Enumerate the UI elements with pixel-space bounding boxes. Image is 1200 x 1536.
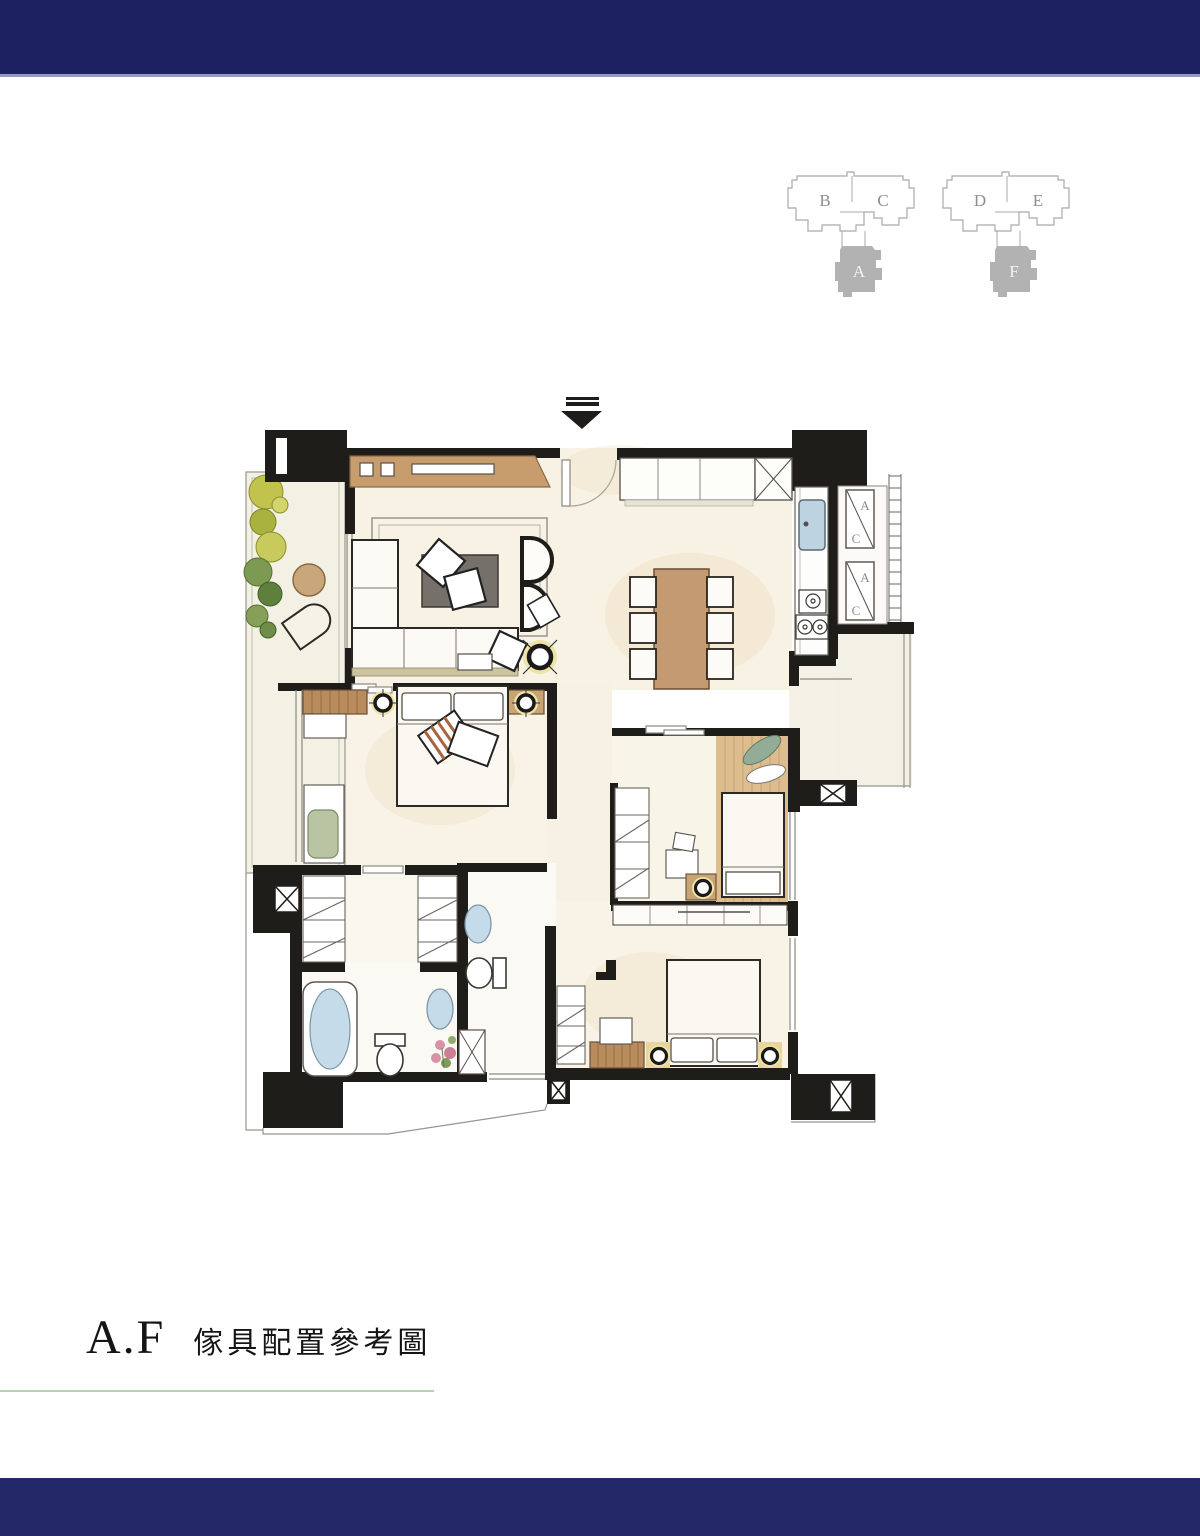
shower xyxy=(459,1030,485,1074)
soundbar xyxy=(412,464,494,474)
wardrobe xyxy=(557,986,585,1064)
toilet xyxy=(466,958,506,988)
plan-title-code: A.F xyxy=(86,1310,165,1365)
ceiling-light-icon xyxy=(759,1045,781,1067)
x-cabinet xyxy=(755,458,792,500)
keyplan-unit-label: D xyxy=(974,191,986,210)
shaft-x-icon xyxy=(820,784,846,803)
bathtub xyxy=(303,982,357,1076)
keyplan-unit-label: C xyxy=(877,191,888,210)
double-bed xyxy=(667,960,760,1066)
ac-box: A C xyxy=(846,562,874,620)
kitchen xyxy=(795,487,828,655)
shaft-x-icon xyxy=(275,886,299,912)
kitchen-sink xyxy=(799,500,825,550)
plan-title-label: 傢具配置參考圖 xyxy=(193,1318,431,1362)
plan-title: A.F 傢具配置參考圖 xyxy=(86,1310,431,1365)
keyplan-stub xyxy=(997,231,1020,247)
keyplan-unit-label: F xyxy=(1009,262,1018,281)
keyplan-unit-label: B xyxy=(819,191,830,210)
wardrobe xyxy=(615,788,649,898)
shaft-x-icon xyxy=(551,1081,566,1100)
ceiling-light-icon xyxy=(692,877,714,899)
ac-label: C xyxy=(852,603,861,618)
single-bed xyxy=(722,793,784,897)
entry-arrow-icon xyxy=(561,397,602,429)
bathroom-sink xyxy=(465,905,491,943)
keyplan-unit-label: E xyxy=(1033,191,1043,210)
barrel-chair xyxy=(522,538,552,582)
desk-chair xyxy=(308,810,338,858)
shaft-x-icon xyxy=(830,1080,852,1112)
ceiling-light-icon xyxy=(648,1045,670,1067)
floor-plan-svg: B C A D E F xyxy=(0,0,1200,1536)
desk xyxy=(600,1018,632,1044)
ac-label: A xyxy=(860,570,870,585)
dining-table xyxy=(654,569,709,689)
keyplan-right: D E F xyxy=(943,172,1069,297)
entry-cabinet xyxy=(620,458,755,500)
accent-line xyxy=(0,1390,434,1392)
bottom-banner xyxy=(0,1478,1200,1536)
dresser xyxy=(303,690,367,714)
bench xyxy=(304,714,346,738)
master-bed xyxy=(397,686,508,806)
keyplan-left: B C A xyxy=(788,172,914,297)
keyplan-building-outline xyxy=(943,172,1069,231)
floor-lamp-icon xyxy=(523,640,557,674)
balcony-table xyxy=(293,564,325,596)
ac-closet: A C A C xyxy=(838,486,887,624)
wardrobe xyxy=(418,876,457,962)
ac-label: C xyxy=(852,531,861,546)
keyplan-unit-label: A xyxy=(853,262,866,281)
toilet xyxy=(375,1034,405,1076)
long-cabinet xyxy=(613,905,787,925)
ac-label: A xyxy=(860,498,870,513)
desk-chair xyxy=(673,832,695,851)
keyplan-building-outline xyxy=(788,172,914,231)
stove xyxy=(796,590,828,639)
wardrobe xyxy=(303,876,345,962)
louver-window xyxy=(889,474,901,622)
headboard-cabinet xyxy=(590,1042,644,1068)
ac-box: A C xyxy=(846,490,874,548)
keyplan-stub xyxy=(842,231,865,247)
bathroom-sink xyxy=(427,989,453,1029)
